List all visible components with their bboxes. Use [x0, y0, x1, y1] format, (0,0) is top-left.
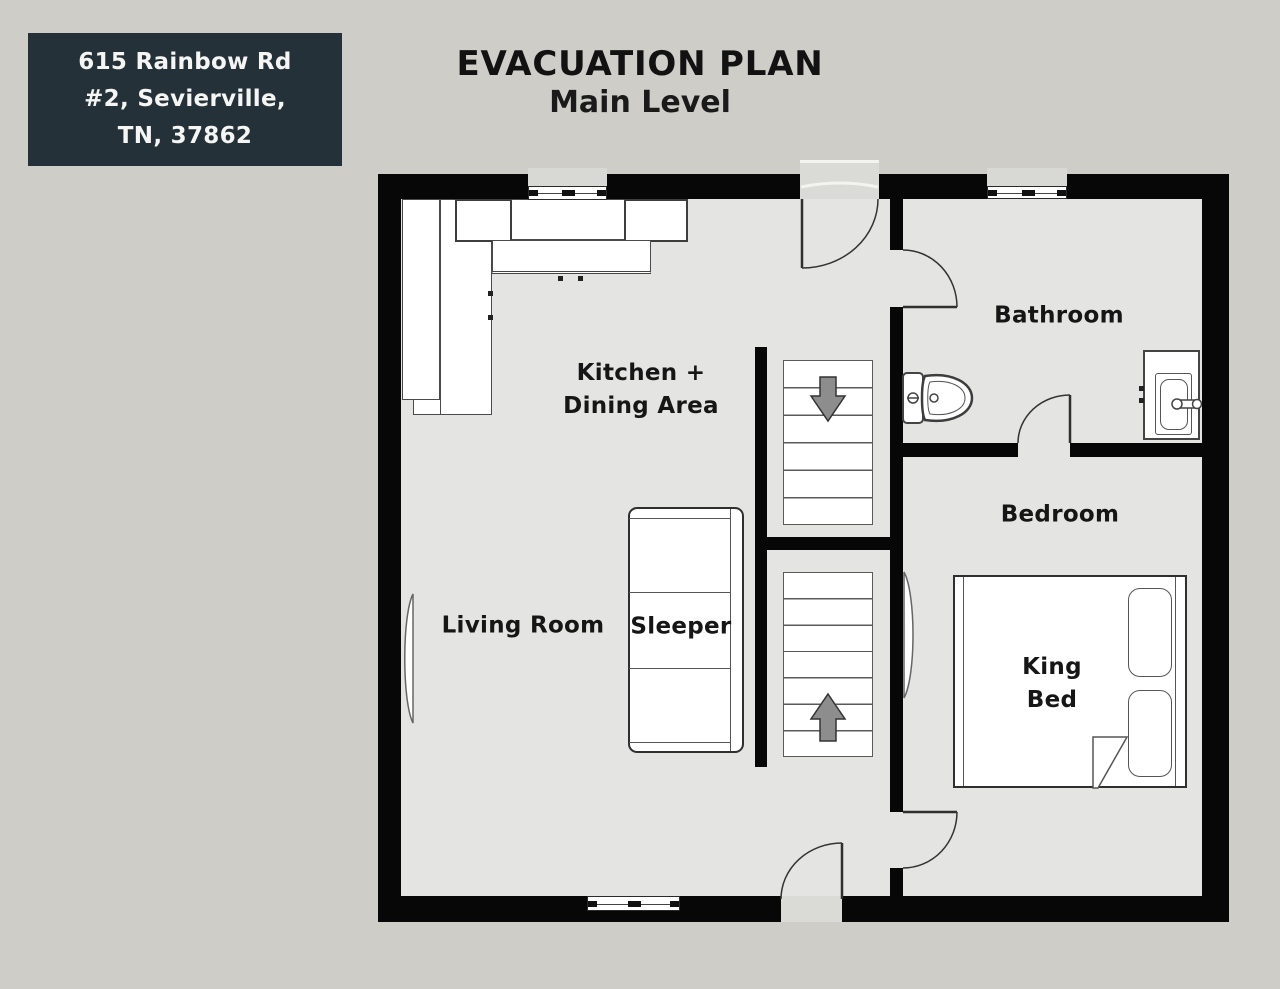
window-tick	[562, 190, 575, 196]
cabinet-handle-dot	[488, 291, 493, 296]
window-tick	[670, 901, 679, 907]
sofa-armrest-line	[629, 518, 731, 519]
vanity-handle-dot	[1139, 398, 1144, 403]
entry-porch	[800, 160, 879, 199]
room-label-bathroom: Bathroom	[994, 300, 1124, 333]
cabinet-handle-dot	[578, 276, 583, 281]
stairs-upper-flight	[783, 360, 873, 525]
address-line-2: #2, Sevierville,	[84, 81, 286, 118]
kitchen-appliance-stove	[624, 199, 688, 242]
bed-label-king-bed: King Bed	[1022, 651, 1082, 717]
window-tick	[597, 190, 606, 196]
evacuation-plan-page: 615 Rainbow Rd #2, Sevierville, TN, 3786…	[0, 0, 1280, 989]
pillow	[1128, 588, 1172, 677]
bed-label-line2: Bed	[1022, 684, 1082, 717]
vanity-handle-dot	[1139, 386, 1144, 391]
bed-foot-line	[963, 577, 964, 786]
page-title: EVACUATION PLAN	[330, 44, 950, 84]
pillow	[1128, 690, 1172, 777]
cabinet-handle-dot	[558, 276, 563, 281]
room-label-kitchen: Kitchen + Dining Area	[563, 357, 719, 423]
bed-label-line1: King	[1022, 651, 1082, 684]
window-tick	[988, 190, 997, 196]
wall-bathroom-bottom-right	[1070, 443, 1202, 457]
wall-right	[1202, 174, 1229, 922]
bathroom-window	[987, 186, 1067, 199]
kitchen-label-line1: Kitchen +	[563, 357, 719, 390]
window-sill	[987, 168, 1067, 186]
address-line-3: TN, 37862	[118, 118, 252, 155]
address-line-1: 615 Rainbow Rd	[78, 44, 291, 81]
stairs-lower-flight	[783, 572, 873, 757]
wall-stairs-landing	[755, 537, 903, 550]
sofa-label-sleeper: Sleeper	[630, 611, 731, 644]
wall-stairs-left	[755, 347, 767, 767]
wall-bedroom-left-lower	[890, 868, 903, 896]
window-tick	[1022, 190, 1035, 196]
kitchen-counter-left-outer	[402, 199, 440, 400]
kitchen-appliance-sink	[455, 199, 512, 242]
patio-door-threshold	[781, 896, 842, 922]
window-tick	[529, 190, 538, 196]
kitchen-label-line2: Dining Area	[563, 390, 719, 423]
wall-bathroom-bottom-left	[890, 443, 1018, 457]
window-tick	[628, 901, 641, 907]
kitchen-window	[528, 186, 607, 200]
sofa-cushion-line	[629, 668, 731, 669]
window-tick	[588, 901, 597, 907]
room-label-living-room: Living Room	[442, 610, 605, 643]
page-subtitle: Main Level	[330, 85, 950, 120]
window-sill	[528, 168, 607, 186]
room-label-bedroom: Bedroom	[1001, 499, 1120, 532]
sink-basin-inner	[1160, 379, 1188, 430]
sofa-cushion-line	[629, 592, 731, 593]
wall-left	[378, 174, 401, 922]
wall-bedroom-left	[890, 307, 903, 812]
wall-bathroom-left-upper	[890, 199, 903, 250]
address-box: 615 Rainbow Rd #2, Sevierville, TN, 3786…	[28, 33, 342, 166]
bed-headboard-line	[1175, 577, 1176, 786]
cabinet-handle-dot	[488, 315, 493, 320]
living-room-window	[587, 896, 680, 911]
sofa-armrest-line	[629, 742, 731, 743]
kitchen-peninsula-counter	[492, 240, 651, 274]
window-tick	[1057, 190, 1066, 196]
